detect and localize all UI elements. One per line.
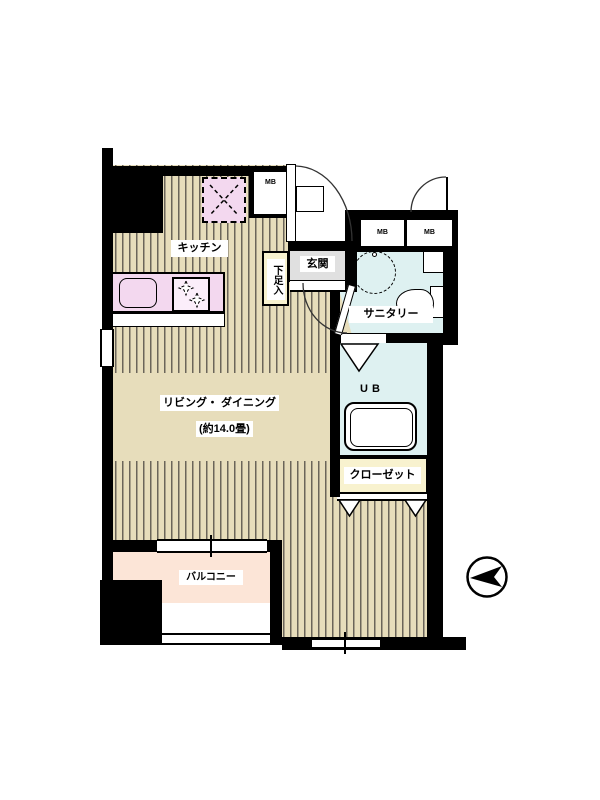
floor-plan: MB MB MB キッチン リビング・ ダイニング (約14.0畳) 玄関 下足… — [0, 0, 600, 800]
kitchen-sink — [119, 278, 157, 308]
closet-door-wedge-right — [404, 499, 428, 518]
bathtub — [344, 402, 417, 451]
corridor-door-swing-arc — [406, 170, 451, 218]
living-dining-size-label: (約14.0畳) — [196, 421, 253, 437]
refrigerator-x-icon — [204, 179, 244, 221]
living-dining-label-band — [113, 373, 330, 461]
sanitary-label: サニタリー — [349, 306, 433, 323]
window-balcony-tick — [210, 535, 212, 557]
closet-door-wedge-left — [338, 499, 362, 518]
wall-balcony-top-left — [113, 540, 158, 552]
kitchen-label: キッチン — [171, 240, 228, 257]
wall-balcony-right — [270, 540, 282, 645]
unit-bath-label: UB — [360, 381, 384, 397]
window-bottom-tick — [344, 632, 346, 654]
meter-box-label: MB — [407, 228, 452, 238]
entrance-door-swing-arc — [276, 148, 386, 252]
closet-label: クローゼット — [344, 467, 421, 484]
window-left-wall — [100, 329, 114, 367]
wall-top-left-block — [102, 166, 163, 233]
balcony-label: バルコニー — [179, 570, 243, 585]
balcony-railing — [162, 633, 270, 645]
refrigerator-space — [202, 177, 246, 223]
meter-box-right-2: MB — [407, 220, 452, 246]
wall-bottom-left-block — [100, 580, 162, 645]
balcony-lower-area — [162, 603, 270, 637]
window-bottom — [312, 638, 380, 649]
washbasin-faucet — [372, 252, 377, 257]
sanitary-door-swing-arc — [297, 277, 355, 339]
sanitary-shelf-box — [423, 250, 445, 273]
entrance-label: 玄関 — [300, 256, 335, 272]
compass-north-icon — [465, 555, 509, 599]
kitchen-counter-front — [111, 313, 225, 327]
washbasin — [353, 251, 396, 294]
shoe-cabinet-label: 下足入 — [267, 259, 285, 300]
bathtub-inner — [350, 408, 413, 447]
unit-bath-door-wedge — [340, 343, 380, 373]
window-balcony — [157, 539, 267, 553]
entrance-child-door-leaf — [296, 186, 324, 212]
stove-burner-icons — [174, 279, 208, 310]
wall-right-lower — [427, 343, 443, 640]
kitchen-stove — [172, 277, 210, 312]
wall-closet-top — [337, 455, 427, 458]
living-dining-label: リビング・ ダイニング — [160, 395, 279, 411]
